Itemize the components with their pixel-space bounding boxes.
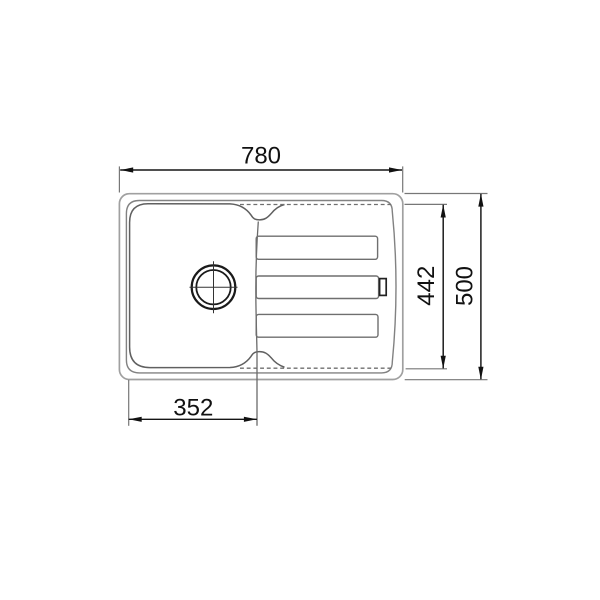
svg-text:352: 352 [173, 395, 213, 422]
svg-text:780: 780 [241, 143, 281, 170]
svg-text:500: 500 [452, 266, 479, 306]
svg-text:442: 442 [413, 266, 440, 306]
